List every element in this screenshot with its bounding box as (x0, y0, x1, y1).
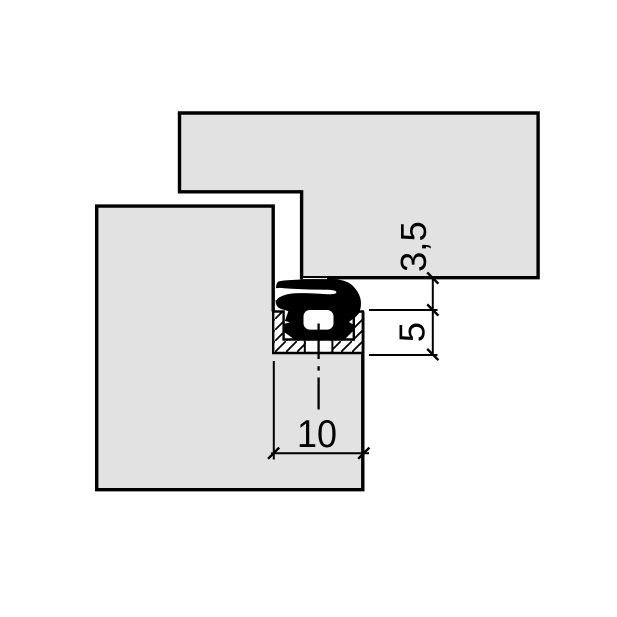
svg-text:10: 10 (297, 413, 337, 456)
svg-text:5: 5 (392, 322, 433, 342)
svg-text:3,5: 3,5 (393, 221, 434, 272)
